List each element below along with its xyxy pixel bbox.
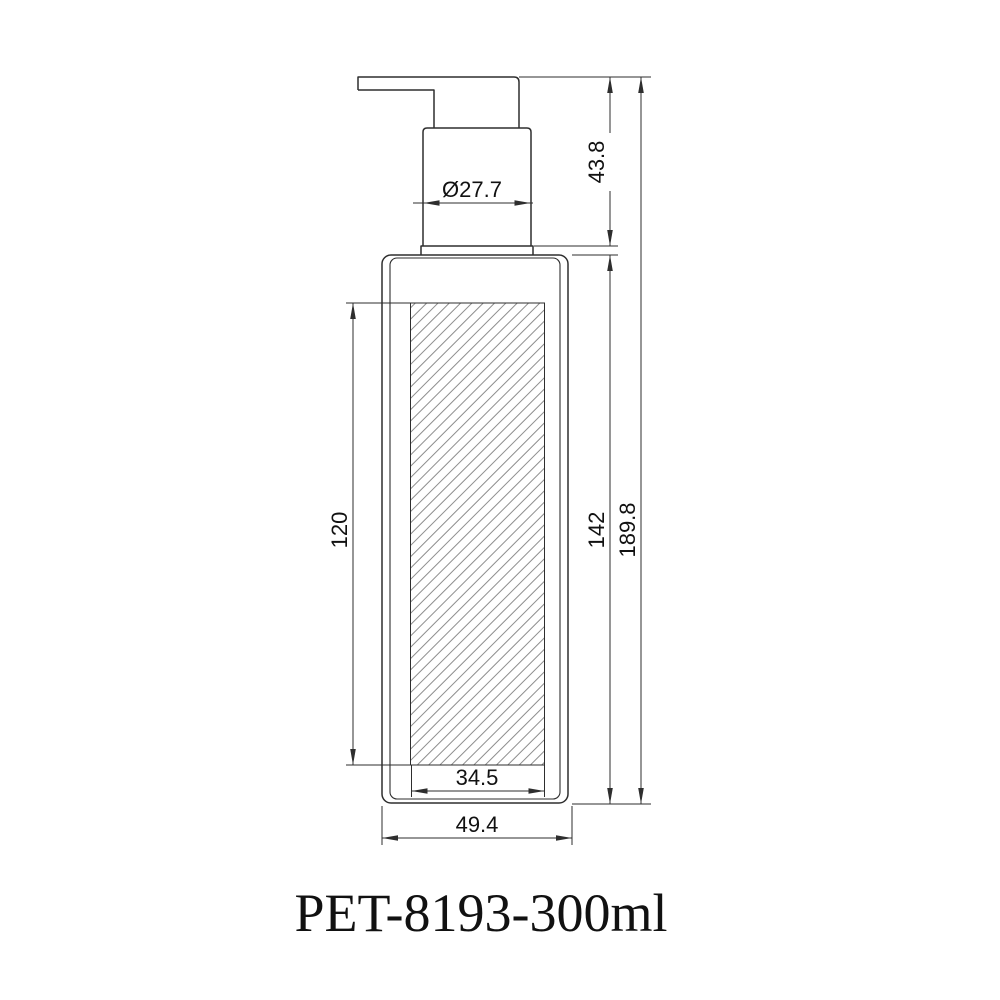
dim-label-height: 120	[327, 303, 356, 765]
arrowhead-up-icon	[638, 77, 644, 93]
arrowhead-down-icon	[607, 230, 613, 246]
technical-drawing-canvas: Ø27.7 43.8 120 142 189.8 34.5	[0, 0, 1000, 1000]
dim-text-total-height: 189.8	[615, 502, 640, 557]
dim-pump-height: 43.8	[584, 77, 613, 246]
drawing-title: PET-8193-300ml	[294, 883, 667, 943]
arrowhead-up-icon	[607, 255, 613, 271]
arrowhead-left-icon	[382, 835, 398, 841]
dim-text-body-height: 142	[584, 512, 609, 549]
label-panel-hatched	[411, 303, 545, 765]
dim-text-pump-diameter: Ø27.7	[442, 177, 502, 202]
arrowhead-down-icon	[350, 749, 356, 765]
arrowhead-up-icon	[607, 77, 613, 93]
dim-text-label-width: 34.5	[456, 765, 499, 790]
dim-text-pump-height: 43.8	[584, 141, 609, 184]
pump-spout	[358, 77, 519, 128]
arrowhead-right-icon	[515, 200, 531, 206]
arrowhead-left-icon	[412, 788, 428, 794]
arrowhead-right-icon	[556, 835, 572, 841]
dim-body-height: 142	[584, 255, 613, 804]
dim-label-width: 34.5	[412, 765, 545, 794]
dim-total-height: 189.8	[615, 77, 644, 804]
arrowhead-up-icon	[350, 303, 356, 319]
arrowhead-left-icon	[424, 200, 440, 206]
arrowhead-right-icon	[529, 788, 545, 794]
dim-text-label-height: 120	[327, 512, 352, 549]
dim-pump-diameter: Ø27.7	[413, 177, 533, 206]
arrowhead-down-icon	[638, 788, 644, 804]
dim-text-body-width: 49.4	[456, 812, 499, 837]
bottle-body	[382, 255, 568, 803]
arrowhead-down-icon	[607, 788, 613, 804]
pump-neck-band	[421, 246, 533, 255]
dim-body-width: 49.4	[382, 812, 572, 841]
pump-assembly	[358, 77, 533, 255]
